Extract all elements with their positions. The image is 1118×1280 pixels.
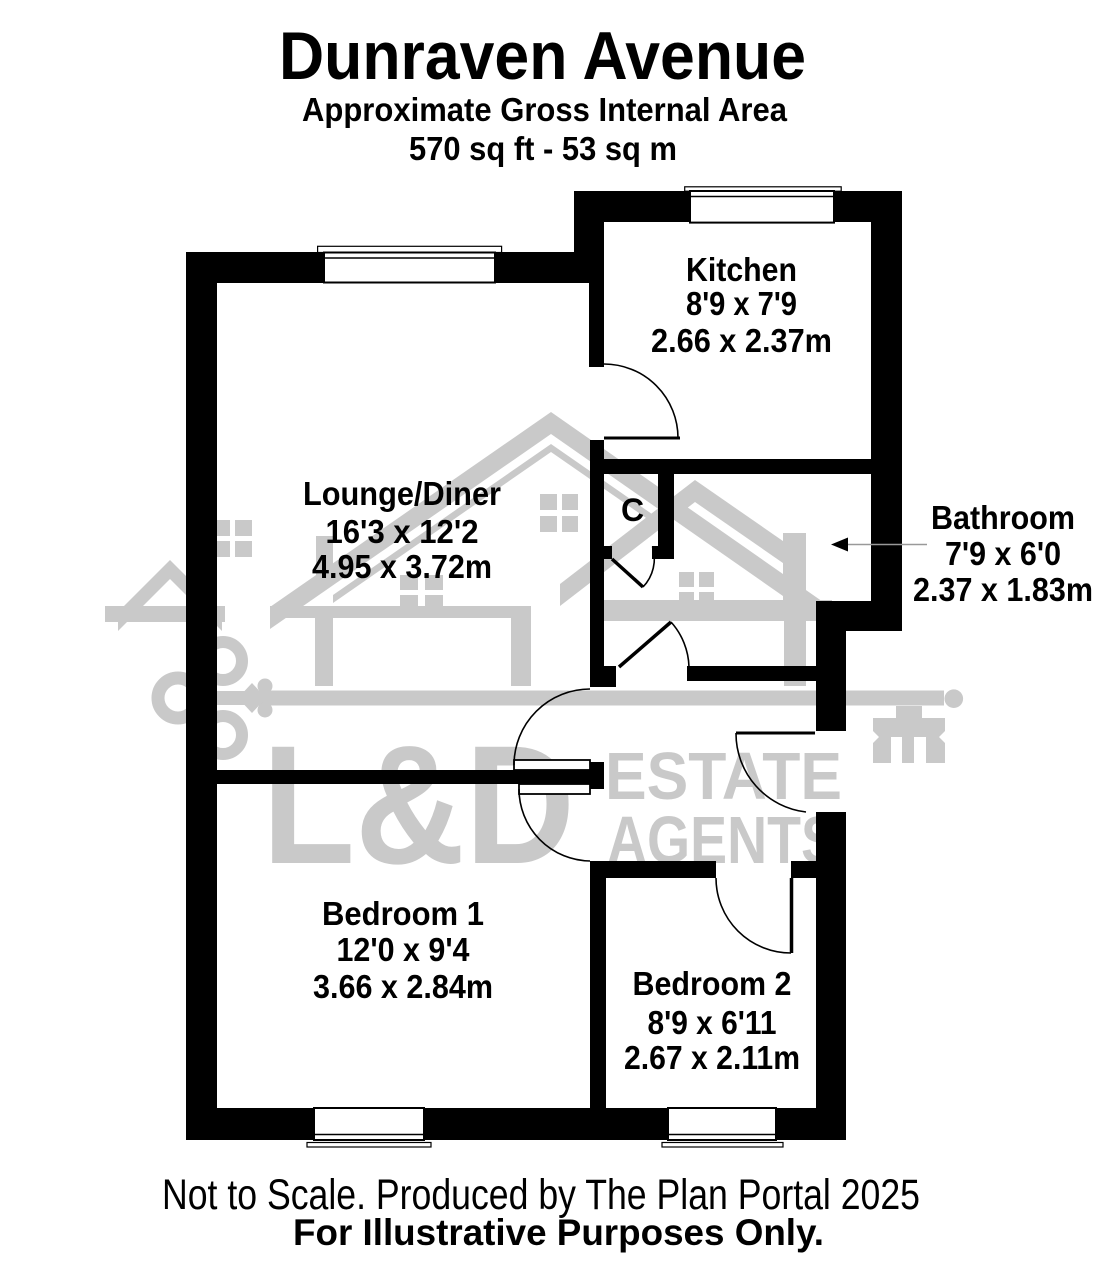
svg-text:8'9 x 6'11: 8'9 x 6'11 bbox=[648, 1004, 777, 1041]
svg-text:C: C bbox=[621, 492, 644, 528]
svg-text:Bedroom 2: Bedroom 2 bbox=[633, 965, 792, 1002]
svg-text:Bathroom: Bathroom bbox=[931, 499, 1075, 536]
svg-text:8'9 x 7'9: 8'9 x 7'9 bbox=[686, 285, 797, 322]
svg-text:Bedroom 1: Bedroom 1 bbox=[322, 895, 484, 932]
svg-text:Kitchen: Kitchen bbox=[686, 251, 797, 288]
svg-text:16'3 x 12'2: 16'3 x 12'2 bbox=[326, 513, 479, 550]
svg-text:Approximate Gross Internal Are: Approximate Gross Internal Area bbox=[302, 91, 788, 128]
svg-text:2.66 x 2.37m: 2.66 x 2.37m bbox=[651, 322, 832, 359]
svg-text:570 sq ft - 53 sq m: 570 sq ft - 53 sq m bbox=[409, 130, 677, 167]
svg-text:L&D: L&D bbox=[262, 710, 575, 899]
svg-text:For Illustrative Purposes Only: For Illustrative Purposes Only. bbox=[293, 1212, 824, 1253]
svg-text:2.37 x 1.83m: 2.37 x 1.83m bbox=[913, 571, 1093, 608]
svg-text:4.95 x 3.72m: 4.95 x 3.72m bbox=[312, 548, 492, 585]
svg-text:12'0 x 9'4: 12'0 x 9'4 bbox=[337, 931, 471, 968]
svg-text:3.66 x 2.84m: 3.66 x 2.84m bbox=[313, 968, 493, 1005]
svg-text:2.67 x 2.11m: 2.67 x 2.11m bbox=[624, 1039, 800, 1076]
svg-text:7'9 x 6'0: 7'9 x 6'0 bbox=[945, 535, 1061, 572]
svg-text:Lounge/Diner: Lounge/Diner bbox=[303, 475, 501, 512]
svg-text:Dunraven Avenue: Dunraven Avenue bbox=[279, 18, 806, 94]
